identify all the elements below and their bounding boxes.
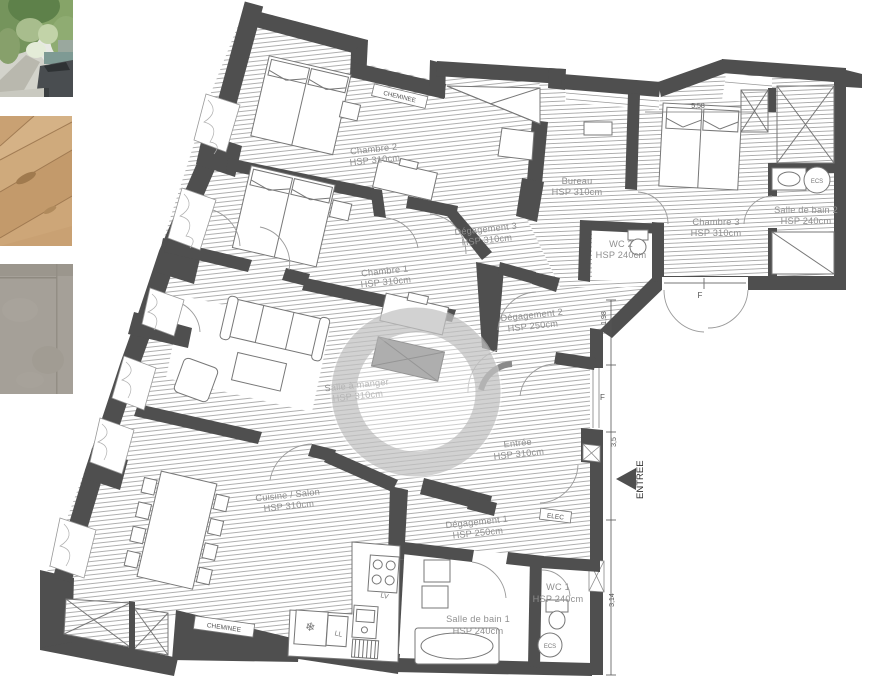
svg-text:F: F <box>698 291 703 300</box>
svg-text:Bureau: Bureau <box>562 176 593 186</box>
svg-text:HSP 310cm: HSP 310cm <box>691 228 742 238</box>
svg-text:ECS: ECS <box>811 179 823 185</box>
svg-text:Chambre 3: Chambre 3 <box>692 217 739 227</box>
svg-text:Salle de bain 2: Salle de bain 2 <box>774 205 838 215</box>
svg-text:5,58: 5,58 <box>691 103 705 110</box>
svg-text:HSP 240cm: HSP 240cm <box>596 250 647 260</box>
svg-text:Salle de bain 1: Salle de bain 1 <box>446 614 510 624</box>
svg-text:HSP 240cm: HSP 240cm <box>453 626 504 636</box>
svg-text:3,5: 3,5 <box>611 437 618 447</box>
svg-text:HSP 310cm: HSP 310cm <box>552 187 603 197</box>
svg-text:HSP 240cm: HSP 240cm <box>533 594 584 604</box>
svg-text:ENTRÉE: ENTRÉE <box>635 460 646 499</box>
svg-text:ECS: ECS <box>544 644 556 650</box>
svg-text:3,14: 3,14 <box>609 593 616 607</box>
svg-text:1,98: 1,98 <box>601 311 608 325</box>
svg-text:WC 2: WC 2 <box>609 239 633 249</box>
svg-text:HSP 240cm: HSP 240cm <box>781 216 832 226</box>
svg-text:F: F <box>600 393 605 402</box>
